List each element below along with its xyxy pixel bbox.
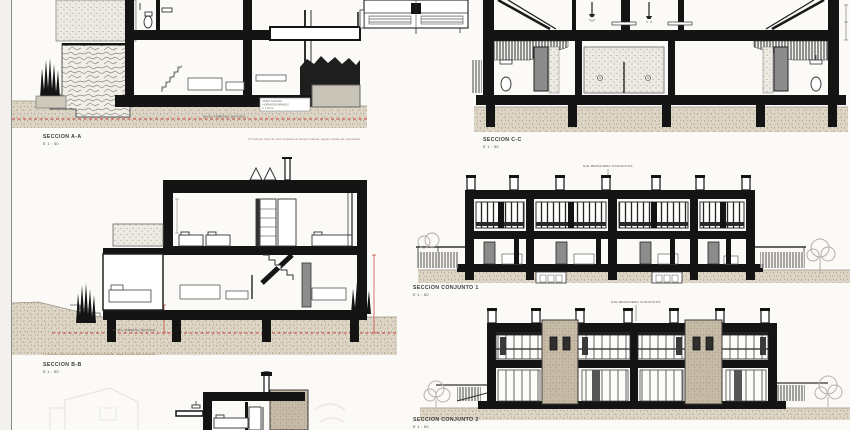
section-conjunto2-drawing: EJE MEDIANERA CONJUNTOS [408,297,850,430]
partial-section-drawing [150,370,400,430]
section-c-label: SECCION C-C [483,137,522,143]
section-a-ground-label: NIVEL TERRENO NATURAL [203,115,246,119]
shower-symbols [589,2,692,25]
section-b-b-drawing: NIVEL TERRENO NATURAL (*) Cota de nivel … [12,155,397,383]
furniture-lower-floor [188,75,286,90]
interior-dimension [175,199,179,233]
planter-right [312,85,360,107]
section-b-ground-label: NIVEL TERRENO NATURAL [113,328,156,332]
tree-right [815,376,842,407]
stone-block-upper [56,0,136,41]
plant-left [76,283,96,323]
conjunto1-chimneys [466,175,751,190]
porch-right [755,239,835,274]
conjunto2-chimneys [487,308,770,323]
section-a-footnote: (*) Cota de nivel de obra respecto al te… [248,137,361,141]
box-line-2: HORMIGON ARMADO [263,103,290,107]
architectural-sections-sheet: MURO SOTANO HORMIGON ARMADO e = 30 cm NI… [0,0,850,430]
box-line-3: e = 30 cm [263,106,274,110]
basement-note-box: MURO SOTANO HORMIGON ARMADO e = 30 cm [260,98,310,111]
gray-door-left [534,47,548,91]
roof-braces [498,0,824,29]
conjunto1-label: SECCION CONJUNTO 1 [413,285,479,291]
section-a-scale: E 1 : 50 [43,141,59,146]
section-b-label: SECCION B-B [43,362,82,368]
balcony-slab [176,411,203,416]
section-c-terrain [474,107,848,132]
conjunto2-terrain [420,408,850,420]
fence-hatch-left [472,60,482,93]
section-c-scale: E 1 : 50 [483,144,499,149]
roof-and-chimney [250,158,292,180]
conjunto2-label: SECCION CONJUNTO 2 [413,417,479,423]
section-c-c-drawing: SECCION C-C E 1 : 50 [472,0,850,152]
faint-sketch [40,378,160,430]
section-b-footnote: (*) Cota de nivel de obra respecto al te… [43,352,156,356]
lower-floor-furniture [180,263,346,307]
planter-terrace [113,224,163,246]
planter-step [36,96,66,108]
porch-left [416,233,465,268]
conjunto2-annotation: EJE MEDIANERA CONJUNTOS [611,300,660,304]
ghost-outline [315,404,345,422]
section-a-label: SECCION A-A [43,134,82,140]
bush-left [418,233,439,248]
staircase-center [262,255,293,283]
plant-silhouette [40,58,60,98]
balcony-slab-top-right [270,12,360,40]
upper-floor-furniture [179,199,352,246]
lower-terrace [103,254,163,310]
plan-fragment-drawing [360,0,472,42]
gray-door-right [774,47,788,91]
dimension-line-right [844,5,848,40]
section-b-terrain [12,302,397,355]
tree-right [807,239,835,274]
box-line-1: MURO SOTANO [263,99,282,103]
hatched-bar-right [421,16,463,24]
conjunto2-scale: E 1 : 50 [413,424,429,429]
section-a-a-drawing: MURO SOTANO HORMIGON ARMADO e = 30 cm NI… [12,0,367,150]
section-b-scale: E 1 : 50 [43,369,59,374]
plant-right [351,280,371,314]
sheet-margin [0,0,11,430]
conjunto1-annotation: EJE MEDIANERA CONJUNTOS [583,164,632,168]
section-conjunto1-drawing: EJE MEDIANERA CONJUNTOS [408,152,850,297]
staircase [162,65,182,92]
hatched-bar-left [369,16,411,24]
center-stone-wall [584,47,664,93]
